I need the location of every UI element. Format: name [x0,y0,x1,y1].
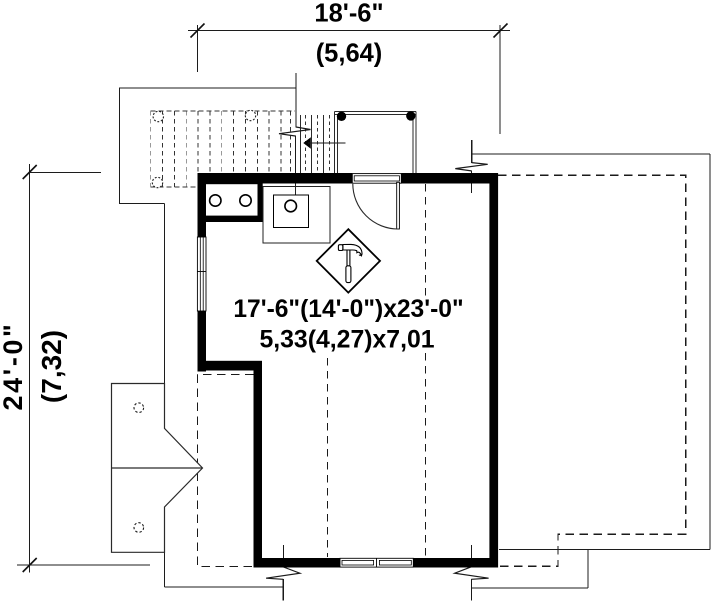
svg-text:(7,32): (7,32) [36,330,67,403]
svg-text:5,33(4,27)x7,01: 5,33(4,27)x7,01 [259,327,434,354]
svg-text:(5,64): (5,64) [316,40,383,68]
svg-text:24'-0": 24'-0" [0,322,28,411]
svg-text:17'-6"(14'-0")x23'-0": 17'-6"(14'-0")x23'-0" [233,296,463,323]
svg-text:18'-6": 18'-6" [314,0,383,28]
